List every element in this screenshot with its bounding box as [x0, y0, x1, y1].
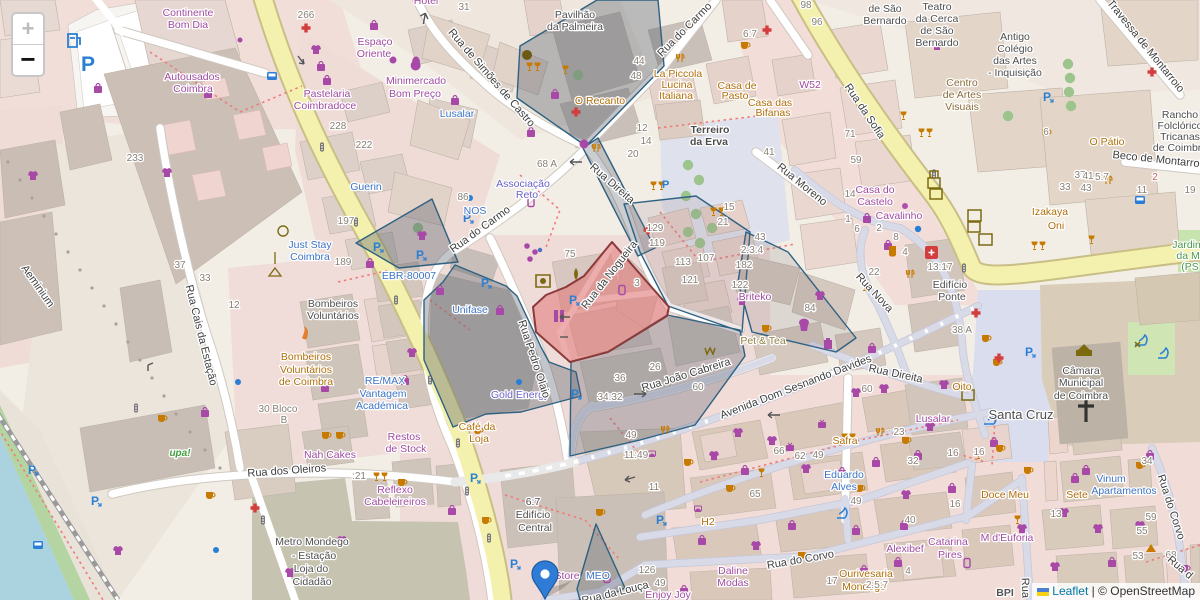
svg-text:2: 2	[876, 223, 882, 234]
svg-text:Bifanas: Bifanas	[755, 107, 790, 119]
svg-text:Minimercado: Minimercado	[386, 75, 446, 87]
svg-text:11: 11	[1137, 185, 1148, 196]
svg-text:119: 119	[649, 238, 665, 249]
svg-text:Hotel: Hotel	[414, 0, 439, 7]
svg-text:107: 107	[698, 253, 715, 264]
svg-text:de Coimbra: de Coimbra	[279, 376, 333, 388]
svg-text:Centro: Centro	[946, 77, 978, 89]
svg-text:RE/MAX: RE/MAX	[365, 375, 405, 387]
svg-text:B: B	[281, 415, 288, 426]
svg-text:Bombeiros: Bombeiros	[281, 351, 331, 363]
svg-text:16: 16	[949, 499, 961, 510]
svg-text:O Pátio: O Pátio	[1089, 136, 1124, 148]
svg-text:H2: H2	[701, 516, 715, 528]
svg-text:Autousados: Autousados	[164, 71, 219, 83]
svg-text:3: 3	[634, 278, 640, 289]
svg-text:6:7: 6:7	[526, 496, 541, 508]
svg-text:Coimbradoce: Coimbradoce	[294, 100, 357, 112]
svg-text:Izakaya: Izakaya	[1032, 206, 1068, 218]
svg-text:59: 59	[1145, 512, 1157, 523]
svg-text:66: 66	[773, 446, 785, 457]
svg-text:2:5:7: 2:5:7	[866, 580, 889, 591]
svg-text:Edifício: Edifício	[516, 509, 551, 521]
svg-text:34: 34	[1141, 456, 1153, 467]
svg-text:Doce Meu: Doce Meu	[981, 489, 1029, 501]
svg-text:Académica: Académica	[356, 400, 408, 412]
svg-text:Santa Cruz: Santa Cruz	[988, 407, 1053, 422]
svg-text:de Coimbra: de Coimbra	[1153, 142, 1200, 154]
svg-text:41: 41	[1082, 171, 1094, 182]
svg-text::21: :21	[352, 471, 366, 482]
svg-text:Pet & Tea: Pet & Tea	[740, 335, 785, 347]
svg-text:Alexibef: Alexibef	[886, 543, 923, 555]
svg-text:BPI: BPI	[996, 587, 1014, 599]
svg-text:Casa do: Casa do	[855, 184, 894, 196]
svg-text:Nah Cakes: Nah Cakes	[304, 449, 356, 461]
svg-text:11:49: 11:49	[624, 450, 649, 461]
svg-text:W52: W52	[799, 79, 821, 91]
svg-text:Bom Dia: Bom Dia	[168, 19, 208, 31]
svg-text:Oito: Oito	[952, 381, 971, 393]
svg-text:30 Bloco: 30 Bloco	[259, 404, 298, 415]
svg-text:de São: de São	[920, 25, 953, 37]
svg-text:(PS: (PS	[1181, 261, 1199, 273]
svg-text:12: 12	[636, 123, 648, 134]
svg-text:Vinum: Vinum	[1096, 473, 1126, 485]
svg-text:Central: Central	[518, 522, 552, 534]
svg-text:Lusalar: Lusalar	[440, 108, 475, 120]
svg-text:49: 49	[812, 450, 824, 461]
svg-text:34:32: 34:32	[597, 392, 622, 403]
svg-text:6: 6	[1043, 127, 1049, 138]
svg-text:Colégio: Colégio	[997, 43, 1033, 55]
svg-text:48: 48	[630, 71, 642, 82]
svg-text:Loja do: Loja do	[294, 563, 329, 575]
svg-text:Câmara: Câmara	[1062, 365, 1100, 377]
svg-text:Catarina: Catarina	[928, 536, 968, 548]
svg-text:33: 33	[199, 273, 211, 284]
svg-text:Metro Mondego: Metro Mondego	[275, 536, 349, 548]
svg-text:68 A: 68 A	[537, 159, 557, 170]
svg-text:65: 65	[749, 489, 761, 500]
svg-text:6:7: 6:7	[743, 29, 757, 40]
svg-text:33: 33	[1059, 182, 1071, 193]
svg-text:84: 84	[804, 303, 816, 314]
svg-text:96: 96	[811, 17, 823, 28]
svg-text:Bernardo: Bernardo	[915, 37, 958, 49]
svg-text:de Coimbra: de Coimbra	[1054, 390, 1108, 402]
svg-text:197: 197	[338, 216, 355, 227]
svg-text:Reto: Reto	[516, 189, 538, 201]
svg-text:Antigo: Antigo	[1000, 31, 1030, 43]
svg-text:222: 222	[356, 140, 373, 151]
svg-text:59: 59	[850, 155, 862, 166]
svg-text:- Estação: - Estação	[292, 550, 337, 562]
svg-text:Terreiro: Terreiro	[691, 124, 730, 136]
svg-text:de São: de São	[868, 3, 901, 15]
svg-text:41: 41	[763, 147, 775, 158]
svg-text:P: P	[662, 179, 669, 191]
svg-text:Café da: Café da	[459, 421, 496, 433]
svg-text:Cidadão: Cidadão	[292, 576, 331, 588]
svg-text:Unifase: Unifase	[452, 304, 488, 316]
svg-text:Voluntários: Voluntários	[280, 364, 332, 376]
svg-text:266: 266	[298, 10, 315, 21]
svg-text:15: 15	[723, 202, 735, 213]
svg-text:Voluntários: Voluntários	[307, 310, 359, 322]
svg-text:Restos: Restos	[388, 431, 421, 443]
svg-text:53: 53	[1132, 551, 1144, 562]
svg-text:de Stock: de Stock	[386, 443, 428, 455]
svg-text:Ourivesaria: Ourivesaria	[839, 568, 893, 580]
svg-text:Vantagem: Vantagem	[359, 388, 406, 400]
svg-text:14: 14	[844, 189, 856, 200]
svg-text:19: 19	[1184, 185, 1196, 196]
svg-text:Cavalinho: Cavalinho	[876, 210, 923, 222]
svg-text:182: 182	[736, 260, 753, 271]
svg-text:Espaço: Espaço	[357, 36, 392, 48]
svg-text:Alves: Alves	[831, 481, 857, 493]
svg-text:Continente: Continente	[163, 7, 214, 19]
svg-text:de Artes: de Artes	[943, 89, 982, 101]
svg-text:EBR-80007: EBR-80007	[382, 270, 436, 282]
svg-text:16: 16	[947, 448, 959, 459]
svg-text:40: 40	[904, 515, 916, 526]
svg-text:- Inquisição: - Inquisição	[988, 67, 1042, 79]
svg-text:43: 43	[1080, 183, 1092, 194]
svg-text:Sete: Sete	[1066, 489, 1088, 501]
svg-text:189: 189	[335, 257, 352, 268]
svg-text:75: 75	[564, 249, 576, 260]
svg-text:Castelo: Castelo	[857, 196, 893, 208]
svg-text:Eduardo: Eduardo	[824, 469, 864, 481]
svg-text:Edifício: Edifício	[933, 279, 968, 291]
svg-text:32: 32	[907, 456, 919, 467]
svg-text:Just Stay: Just Stay	[288, 239, 332, 251]
svg-text:Briteko: Briteko	[739, 291, 772, 303]
svg-text:das Artes: das Artes	[993, 55, 1037, 67]
svg-text:Pires: Pires	[938, 549, 962, 561]
svg-text:Teatro: Teatro	[922, 1, 951, 13]
svg-text:126: 126	[639, 565, 656, 576]
svg-text:Bombeiros: Bombeiros	[308, 298, 358, 310]
svg-text:113: 113	[675, 257, 691, 268]
svg-text:14: 14	[640, 136, 652, 147]
svg-text:P: P	[81, 53, 95, 76]
svg-text:233: 233	[127, 153, 144, 164]
svg-text:2:3:4: 2:3:4	[741, 245, 764, 256]
svg-text:71: 71	[844, 129, 856, 140]
svg-text:98: 98	[800, 0, 812, 11]
svg-text:Cabeleireiros: Cabeleireiros	[364, 496, 426, 508]
svg-text:4: 4	[902, 247, 908, 258]
svg-text:20: 20	[627, 149, 639, 160]
svg-text:upa!: upa!	[169, 448, 191, 459]
svg-text:26: 26	[649, 362, 661, 373]
svg-text:4: 4	[905, 566, 911, 577]
svg-text:8: 8	[893, 232, 899, 243]
svg-text:Modas: Modas	[717, 577, 749, 589]
svg-text:129: 129	[647, 223, 664, 234]
svg-text:22: 22	[868, 267, 880, 278]
svg-text:6: 6	[854, 224, 860, 235]
svg-text:1: 1	[845, 214, 851, 225]
svg-text:MEO: MEO	[586, 570, 610, 582]
svg-text:Reflexo: Reflexo	[377, 484, 413, 496]
svg-text:Pasto: Pasto	[722, 90, 749, 102]
svg-text:Visuais: Visuais	[945, 101, 979, 113]
svg-text:13: 13	[1050, 509, 1062, 520]
svg-text:37: 37	[174, 260, 186, 271]
svg-text:Lusalar: Lusalar	[916, 413, 951, 425]
svg-text:11: 11	[649, 482, 660, 493]
svg-text:Apartamentos: Apartamentos	[1091, 485, 1156, 497]
svg-text:44: 44	[633, 56, 645, 67]
svg-text:62: 62	[794, 451, 806, 462]
svg-text:121: 121	[682, 275, 699, 286]
svg-text:43: 43	[754, 232, 766, 243]
svg-text:17: 17	[826, 576, 838, 587]
svg-text:Oriente: Oriente	[357, 48, 392, 60]
svg-text:Loja: Loja	[469, 433, 489, 445]
svg-text:Pastelaria: Pastelaria	[304, 88, 351, 100]
svg-text:12: 12	[228, 300, 240, 311]
svg-text:5:7: 5:7	[1095, 172, 1109, 183]
svg-text:49: 49	[625, 430, 637, 441]
svg-text:da Erva: da Erva	[690, 136, 728, 148]
svg-text:Guerin: Guerin	[350, 181, 382, 193]
svg-text:16: 16	[973, 447, 985, 458]
svg-text:122: 122	[732, 280, 749, 291]
svg-text:23: 23	[893, 427, 905, 438]
svg-text:55: 55	[1136, 526, 1148, 537]
svg-text:da Palmeira: da Palmeira	[547, 21, 603, 33]
svg-text:Italiana: Italiana	[659, 90, 693, 102]
svg-text:86: 86	[457, 192, 469, 203]
svg-text:Municipal: Municipal	[1059, 377, 1103, 389]
svg-text:21: 21	[717, 217, 729, 228]
svg-text:31: 31	[458, 2, 470, 13]
svg-text:NOS: NOS	[464, 205, 487, 217]
svg-text:49: 49	[654, 578, 666, 589]
svg-text:M d'Euforia: M d'Euforia	[981, 532, 1034, 544]
svg-text:Pavilhão: Pavilhão	[555, 9, 595, 21]
svg-text:2: 2	[1152, 172, 1158, 183]
svg-text:Bom Preço: Bom Preço	[389, 88, 441, 100]
svg-text:Enjoy Joy: Enjoy Joy	[645, 589, 691, 600]
svg-text:da Cerca: da Cerca	[916, 13, 959, 25]
svg-text:13:17: 13:17	[927, 262, 952, 273]
svg-text:Coimbra: Coimbra	[290, 251, 330, 263]
svg-text:Daline: Daline	[718, 565, 748, 577]
svg-text:60: 60	[861, 384, 873, 395]
svg-text:Bernardo: Bernardo	[863, 15, 906, 27]
svg-text:Safra: Safra	[832, 435, 857, 447]
svg-text:Rua: Rua	[1019, 578, 1032, 599]
svg-text:49: 49	[850, 496, 862, 507]
svg-text:Coimbra: Coimbra	[173, 83, 213, 95]
svg-text:38 A: 38 A	[952, 325, 972, 336]
svg-text:O Recanto: O Recanto	[575, 95, 625, 107]
svg-text:Ponte: Ponte	[938, 291, 966, 303]
svg-text:60: 60	[692, 382, 704, 393]
svg-text:228: 228	[330, 121, 347, 132]
svg-text:Oni: Oni	[1048, 220, 1064, 232]
svg-text:36: 36	[614, 373, 626, 384]
